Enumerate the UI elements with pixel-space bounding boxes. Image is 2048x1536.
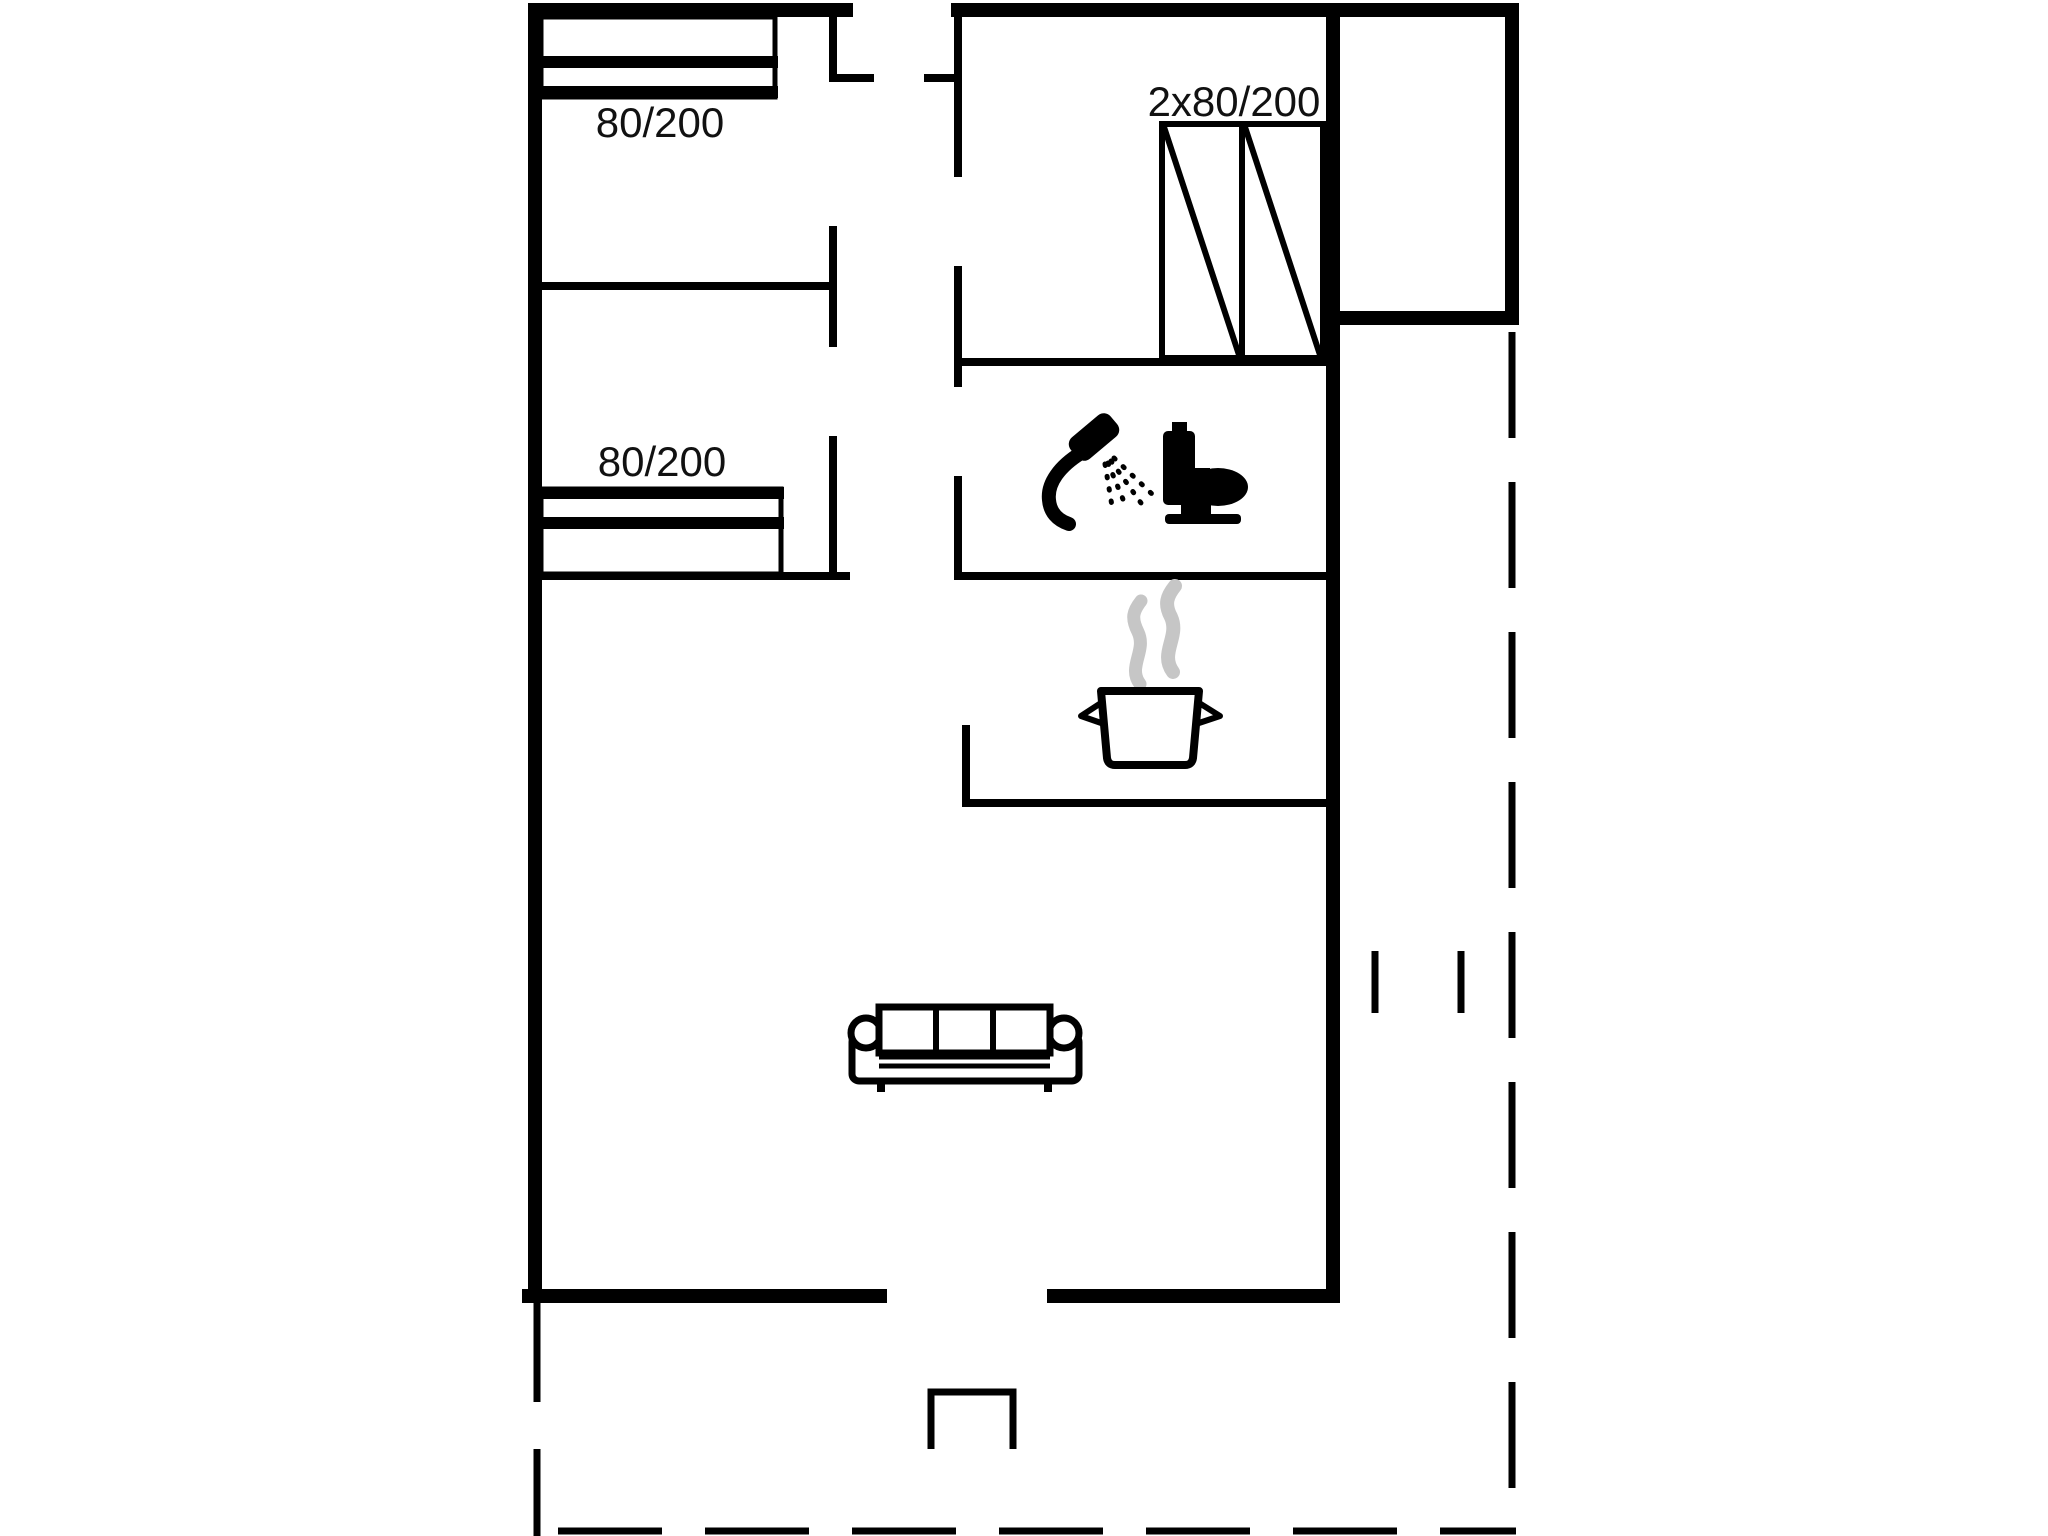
toilet-base bbox=[1165, 514, 1241, 524]
sofa-icon bbox=[851, 1007, 1079, 1092]
steam-wisp bbox=[1167, 586, 1175, 672]
sofa-backrest bbox=[879, 1007, 1050, 1053]
bed-middle-left-label: 80/200 bbox=[598, 438, 726, 485]
bed-bar bbox=[538, 86, 778, 98]
steam-wisp bbox=[1134, 601, 1141, 684]
plan-background bbox=[0, 0, 2048, 1536]
pot-body bbox=[1101, 691, 1199, 765]
bed-bar bbox=[538, 487, 784, 499]
bed-bar bbox=[538, 517, 784, 529]
toilet-pedestal bbox=[1181, 498, 1211, 516]
floor-plan-svg: 80/200 80/200 2x80/200 bbox=[0, 0, 2048, 1536]
bunk-bed-label: 2x80/200 bbox=[1148, 78, 1321, 125]
bed-bar bbox=[538, 56, 778, 68]
bed-top-left-label: 80/200 bbox=[596, 99, 724, 146]
floor-plan: 80/200 80/200 2x80/200 bbox=[0, 0, 2048, 1536]
